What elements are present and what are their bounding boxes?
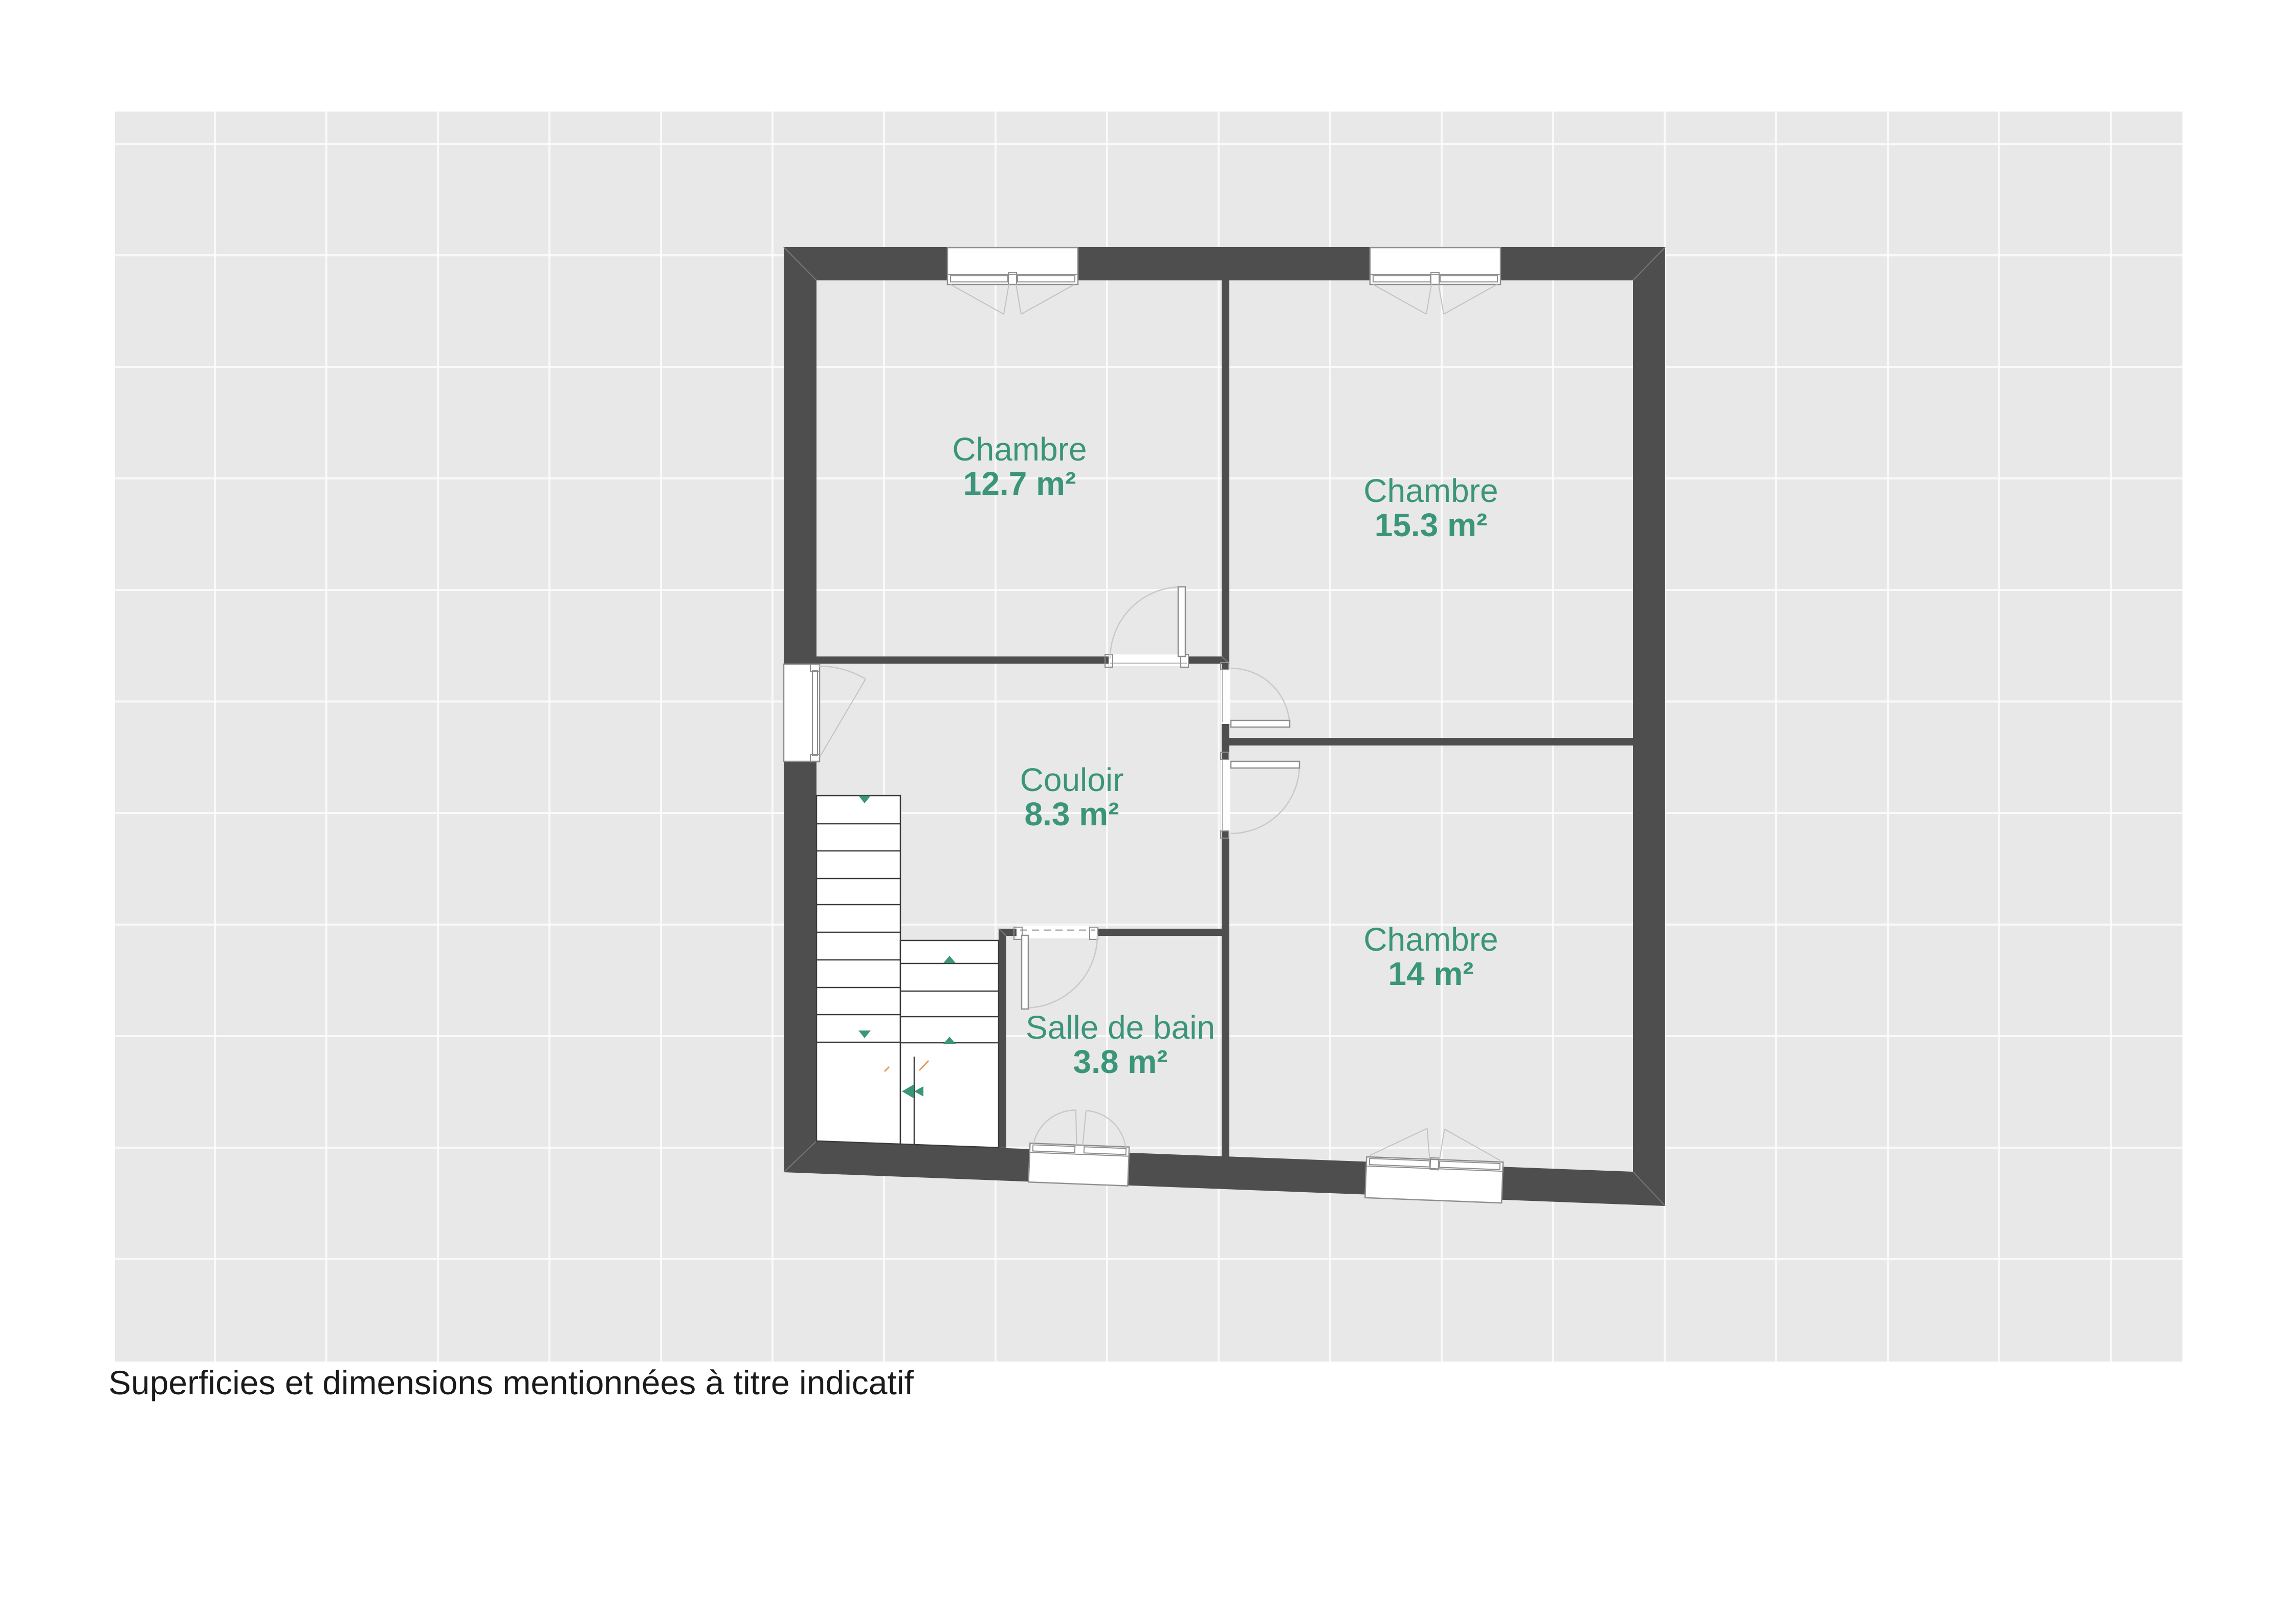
room-area: 12.7 m²: [952, 467, 1087, 501]
room-label-couloir: Couloir 8.3 m²: [1020, 763, 1124, 831]
room-label-chambre-1: Chambre 12.7 m²: [952, 432, 1087, 501]
floor-plan-page: Chambre 12.7 m² Chambre 15.3 m² Couloir …: [0, 0, 2296, 1623]
room-name: Chambre: [1363, 474, 1498, 508]
room-area: 8.3 m²: [1020, 797, 1124, 831]
door-chambre1: [1105, 587, 1188, 667]
staircase: [816, 796, 999, 1148]
room-label-chambre-3: Chambre 14 m²: [1363, 923, 1498, 991]
window-chambre2: [1370, 248, 1500, 314]
window-couloir: [784, 664, 866, 762]
room-name: Couloir: [1020, 763, 1124, 797]
room-area: 15.3 m²: [1363, 508, 1498, 542]
door-salle-de-bain: [1014, 926, 1098, 1009]
disclaimer-caption: Superficies et dimensions mentionnées à …: [108, 1363, 914, 1402]
door-chambre2: [1221, 663, 1290, 727]
door-chambre3: [1221, 752, 1299, 838]
room-area: 14 m²: [1363, 957, 1498, 991]
room-area: 3.8 m²: [1026, 1045, 1215, 1079]
room-label-salle-de-bain: Salle de bain 3.8 m²: [1026, 1011, 1215, 1079]
room-name: Salle de bain: [1026, 1011, 1215, 1045]
window-chambre1: [947, 248, 1078, 314]
window-chambre3: [1365, 1126, 1504, 1203]
room-label-chambre-2: Chambre 15.3 m²: [1363, 474, 1498, 542]
room-name: Chambre: [952, 432, 1087, 467]
window-salle-de-bain: [1028, 1108, 1130, 1186]
room-name: Chambre: [1363, 923, 1498, 957]
